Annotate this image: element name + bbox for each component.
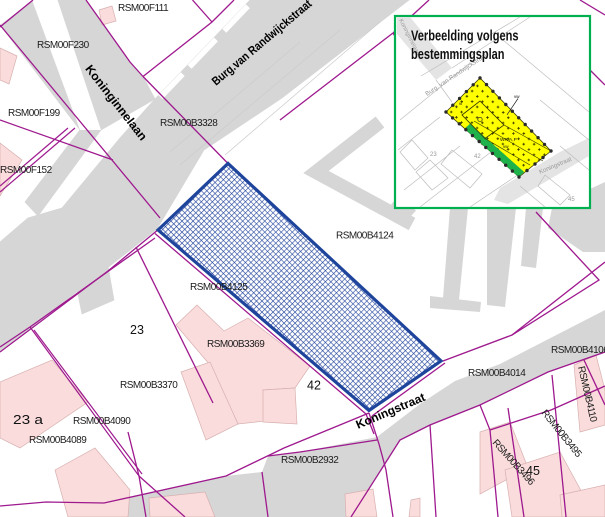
svg-text:RSM00F152: RSM00F152: [0, 165, 53, 176]
svg-text:bestemmingsplan: bestemmingsplan: [411, 47, 505, 63]
svg-text:vr: vr: [459, 101, 463, 106]
svg-text:23 a: 23 a: [13, 413, 43, 427]
svg-text:RSM00B4106: RSM00B4106: [551, 345, 605, 356]
svg-text:Verbeelding volgens: Verbeelding volgens: [411, 29, 519, 45]
svg-text:RSM00B4014: RSM00B4014: [468, 368, 526, 379]
svg-text:RSM00B3369: RSM00B3369: [207, 339, 265, 350]
svg-text:RSM00B2932: RSM00B2932: [281, 455, 339, 466]
svg-text:RSM00F230: RSM00F230: [37, 40, 90, 51]
svg-text:42: 42: [474, 154, 481, 160]
svg-text:RSM00B4089: RSM00B4089: [29, 435, 87, 446]
svg-text:vw: vw: [503, 144, 509, 149]
svg-text:RSM00B4124: RSM00B4124: [336, 231, 394, 242]
svg-text:RSM00B4090: RSM00B4090: [73, 416, 131, 427]
svg-text:45: 45: [526, 464, 540, 478]
svg-text:23: 23: [430, 152, 437, 158]
svg-text:vw: vw: [514, 94, 520, 99]
svg-text:RSM00F199: RSM00F199: [8, 108, 61, 119]
svg-text:WR A,P: WR A,P: [500, 137, 517, 143]
svg-text:42: 42: [307, 379, 321, 393]
svg-text:RSM00B3370: RSM00B3370: [120, 380, 178, 391]
svg-text:23: 23: [130, 323, 144, 337]
svg-text:RSM00B3328: RSM00B3328: [160, 118, 218, 129]
svg-text:RSM00B4125: RSM00B4125: [190, 282, 248, 293]
svg-text:45: 45: [568, 197, 575, 203]
svg-text:RSM00F111: RSM00F111: [118, 3, 169, 14]
